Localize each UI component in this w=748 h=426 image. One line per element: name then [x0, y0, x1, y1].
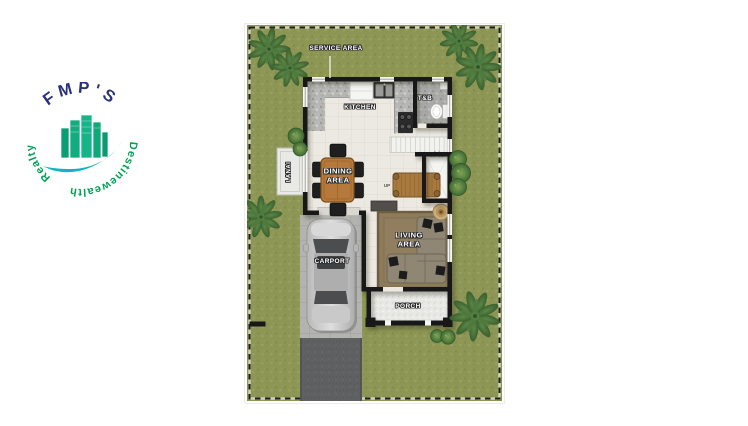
driveway: [300, 338, 362, 401]
car-icon: [304, 219, 359, 333]
bush-icon: [293, 142, 307, 156]
tv-console-icon: [371, 201, 397, 211]
label-toilet-bath: T&B: [418, 95, 433, 103]
label-carport: CARPORT: [315, 258, 350, 266]
fence-stub: [250, 322, 266, 327]
bush-icon: [288, 128, 304, 144]
floor-plan-graphic: [247, 25, 502, 401]
logo-buildings-icon: [61, 115, 108, 158]
label-dining-area: DINING AREA: [324, 167, 353, 186]
bush-icon: [441, 330, 455, 344]
label-service-area: SERVICE AREA: [309, 45, 362, 53]
wood-stair-flight: [393, 173, 440, 197]
bush-icon: [450, 179, 467, 196]
label-kitchen: KITCHEN: [344, 104, 376, 112]
toilet-icon: [431, 104, 449, 119]
kitchen-sink-icon: [374, 82, 395, 99]
floor-plan-image: SERVICE AREA KITCHEN T&B LANAI DINING AR…: [245, 24, 504, 403]
logo-arc-top-text: FMP'S: [40, 82, 122, 109]
label-living-area: LIVING AREA: [395, 231, 422, 250]
label-stairs-up: UP: [384, 183, 390, 189]
bath-sink-icon: [440, 83, 448, 90]
floor-plan-page: FMP'S Realty Destinewealth: [0, 0, 748, 426]
company-logo: FMP'S Realty Destinewealth: [24, 82, 139, 197]
stove-icon: [398, 112, 413, 133]
label-lanai: LANAI: [286, 162, 294, 182]
floor-lamp-icon: [433, 204, 449, 220]
label-porch: PORCH: [395, 303, 420, 311]
logo-arc-left-text: Realty: [24, 143, 53, 184]
